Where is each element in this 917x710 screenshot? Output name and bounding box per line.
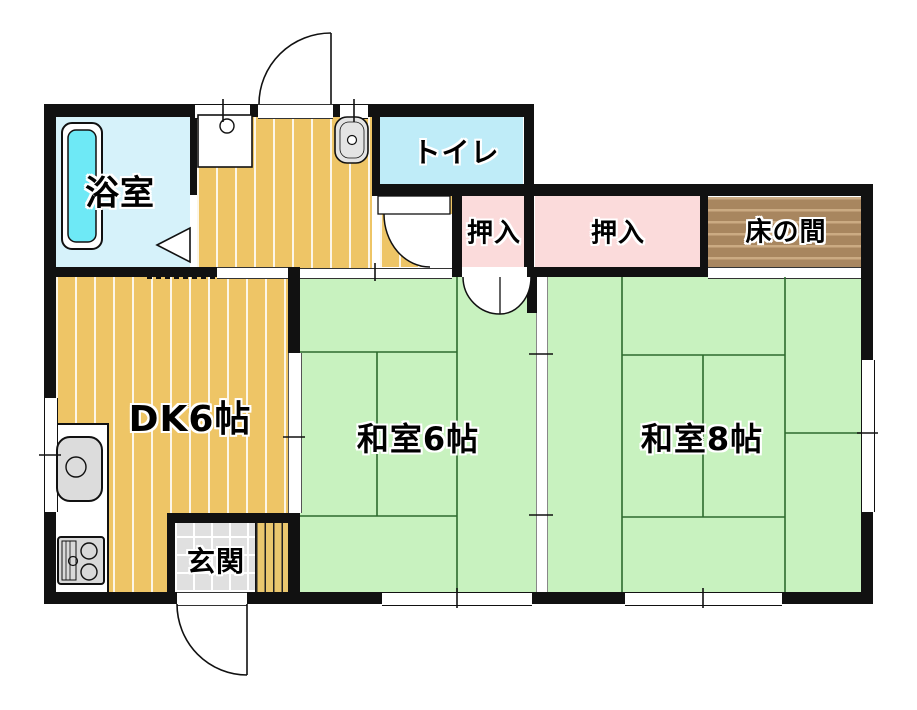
washroom-corridor [380, 196, 452, 267]
entrance-step [255, 523, 291, 592]
wall-bottom-1 [44, 592, 177, 604]
opening-closet-doors [462, 268, 527, 277]
room-label-washitsu6: 和室6帖 [357, 414, 479, 460]
wall-top-b [333, 104, 340, 117]
wall-toilet-left [372, 104, 380, 196]
opening-dk-washroom [217, 267, 288, 279]
wall-bathroom-right [190, 117, 197, 195]
wall-toilet-right [524, 104, 534, 267]
kitchen-counter [56, 423, 109, 594]
fusuma-sliding-door [536, 277, 548, 592]
window-washbasin [195, 104, 250, 119]
wall-closet-row-top [372, 184, 873, 196]
room-label-toilet: トイレ [412, 131, 499, 171]
wall-left-upper [44, 104, 56, 398]
room-label-entrance: 玄関 [187, 540, 245, 580]
wall-top-left [44, 104, 195, 117]
room-label-closet-1: 押入 [467, 213, 521, 250]
slide-dk-washitsu6 [288, 353, 302, 513]
wall-bottom-4 [782, 592, 873, 604]
wall-top-a [250, 104, 258, 117]
back-door-icon [259, 33, 331, 104]
window-washitsu8-e [861, 360, 875, 512]
room-label-bathroom: 浴室 [85, 166, 155, 215]
wall-dk-east-upper [288, 267, 300, 353]
room-label-dk: DK6帖 [129, 390, 252, 442]
floor-plan: 浴室 トイレ 押入 押入 床の間 DK6帖 和室6帖 和室8帖 玄関 [0, 0, 917, 710]
wall-entrance-left [167, 523, 175, 592]
wall-bathroom-bottom [44, 267, 217, 277]
window-handbasin [340, 104, 368, 119]
wall-bottom-3 [532, 592, 625, 604]
wall-right-upper [861, 184, 873, 360]
slide-washitsu6-top [300, 268, 452, 279]
room-label-washitsu8: 和室8帖 [641, 414, 763, 460]
opening-back-door [258, 104, 333, 119]
wall-closet2-bottom [537, 267, 708, 277]
wall-bottom-2 [247, 592, 382, 604]
room-label-tokonoma: 床の間 [745, 212, 826, 249]
window-washitsu8-s [625, 592, 782, 606]
entrance-door-icon [177, 604, 247, 675]
wall-entrance-top [167, 513, 290, 523]
wall-dk-east-lower [288, 513, 300, 592]
wall-toilet-top [380, 104, 533, 117]
wall-right-lower [861, 512, 873, 604]
wall-tokonoma-left [700, 196, 708, 267]
tokonoma-opening [708, 267, 861, 279]
window-dk-left [44, 398, 58, 512]
opening-entrance-door [177, 592, 247, 606]
wall-left-lower [44, 512, 56, 604]
room-label-closet-2: 押入 [591, 213, 645, 250]
wall-closet-jamb [527, 267, 537, 313]
window-washitsu6-s [382, 592, 532, 606]
room-washroom [197, 117, 372, 268]
wall-closet1-left [452, 196, 462, 277]
